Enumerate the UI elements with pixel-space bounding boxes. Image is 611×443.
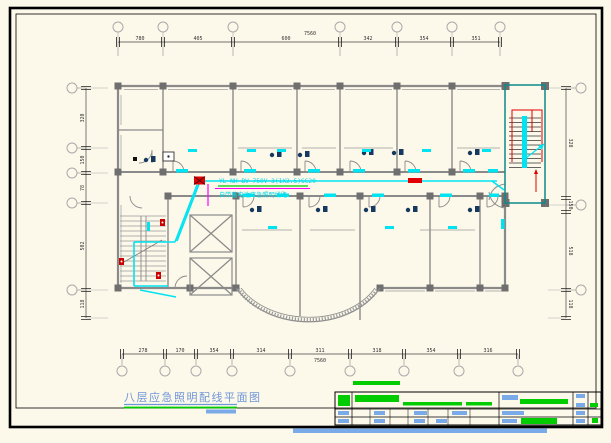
title-block bbox=[335, 381, 601, 425]
stair-handrail-bar bbox=[522, 116, 527, 168]
windows bbox=[121, 90, 502, 292]
cad-canvas: 780 405 600 342 354 351 7560 278 170 354… bbox=[0, 0, 611, 443]
dim-label: 316 bbox=[483, 348, 492, 354]
drawing-title: 八层应急照明配线平面图 bbox=[124, 390, 262, 414]
axis-bubbles-right bbox=[576, 83, 586, 295]
axis-dimensions-right: 328 150 518 118 bbox=[548, 83, 586, 320]
dim-label: 318 bbox=[372, 348, 381, 354]
dim-label: 354 bbox=[426, 348, 435, 354]
titleblock-stamp-bar bbox=[353, 381, 400, 385]
title-scale-bar bbox=[206, 410, 236, 414]
dim-label: 328 bbox=[567, 138, 573, 147]
footer-highlight-bar bbox=[293, 429, 547, 434]
dim-overall: 7560 bbox=[304, 31, 316, 37]
dim-label: 354 bbox=[419, 36, 428, 42]
floor-plan bbox=[115, 82, 550, 322]
stairwell-left bbox=[120, 216, 166, 281]
dim-label: 150 bbox=[80, 155, 86, 164]
dim-label: 311 bbox=[315, 348, 324, 354]
dim-label: 405 bbox=[193, 36, 202, 42]
dim-label: 170 bbox=[175, 348, 184, 354]
drawing-frame bbox=[10, 8, 602, 427]
titleblock-logo bbox=[338, 395, 350, 406]
stairwell-right bbox=[505, 85, 545, 203]
dim-label: 118 bbox=[80, 299, 86, 308]
dim-label: 780 bbox=[135, 36, 144, 42]
dim-label: 78 bbox=[80, 185, 86, 191]
dim-overall: 7560 bbox=[314, 358, 326, 364]
dim-label: 502 bbox=[80, 241, 86, 250]
dim-label: 351 bbox=[471, 36, 480, 42]
dim-label: 600 bbox=[281, 36, 290, 42]
drawing-title-text: 八层应急照明配线平面图 bbox=[124, 390, 262, 404]
dim-label: 320 bbox=[80, 113, 86, 122]
threshold-lamps bbox=[147, 149, 505, 231]
dim-label: 118 bbox=[567, 299, 573, 308]
annotation-line1: YL NH-BV-750V-3(1X2.5)SC20 bbox=[219, 178, 316, 185]
axis-dimensions-top: 780 405 600 342 354 351 7560 bbox=[113, 22, 505, 56]
dim-label: 518 bbox=[567, 246, 573, 255]
dim-label: 354 bbox=[209, 348, 218, 354]
dim-label: 150 bbox=[567, 200, 573, 209]
axis-bubbles-bottom bbox=[117, 366, 523, 376]
axis-bubbles-left bbox=[67, 83, 77, 295]
columns bbox=[115, 82, 550, 292]
dim-label: 314 bbox=[256, 348, 265, 354]
dim-label: 278 bbox=[138, 348, 147, 354]
curved-facade bbox=[236, 288, 380, 322]
dim-label: 342 bbox=[363, 36, 372, 42]
annotation-line2: 自带蓄电池应急照明线路 bbox=[219, 191, 288, 199]
elevator-shafts bbox=[190, 215, 232, 295]
corridor-red-device bbox=[408, 178, 422, 183]
axis-dimensions-bottom: 278 170 354 314 311 318 354 316 7560 bbox=[117, 348, 523, 376]
axis-dimensions-left: 320 150 78 502 118 bbox=[67, 83, 108, 320]
